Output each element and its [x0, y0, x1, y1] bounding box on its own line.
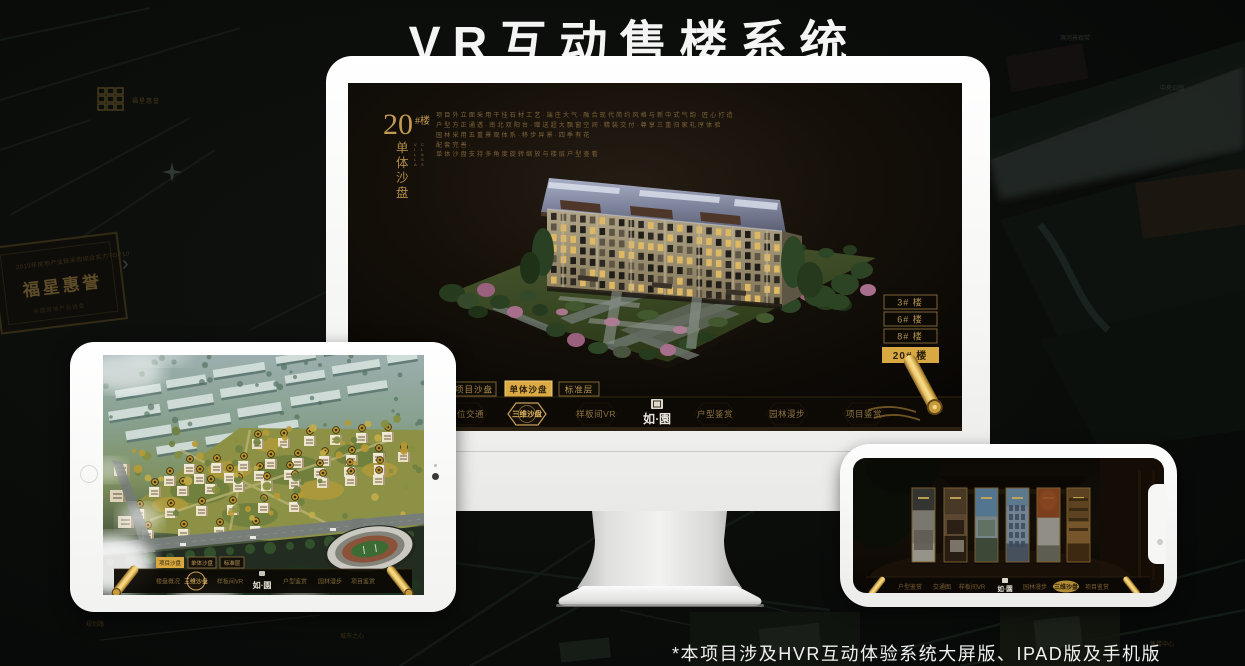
- svg-text:户型鉴赏: 户型鉴赏: [283, 578, 307, 586]
- svg-text:项目鉴赏: 项目鉴赏: [1085, 583, 1109, 591]
- svg-text:#楼: #楼: [415, 114, 430, 127]
- svg-text:户型方正通透·南北双阳台·赠送超大飘窗空间·精装交付·尊享三: 户型方正通透·南北双阳台·赠送超大飘窗空间·精装交付·尊享三重归家礼序体验: [436, 121, 722, 129]
- svg-text:›: ›: [122, 253, 129, 275]
- svg-text:如·園: 如·園: [643, 411, 671, 426]
- svg-text:3# 楼: 3# 楼: [897, 297, 923, 308]
- svg-text:园林漫步: 园林漫步: [1023, 583, 1047, 591]
- svg-text:S: S: [421, 162, 424, 167]
- svg-text:交通图: 交通图: [933, 583, 951, 591]
- svg-text:福星惠誉: 福星惠誉: [132, 97, 160, 105]
- svg-text:城市之心: 城市之心: [340, 632, 364, 640]
- svg-text:三维沙盘: 三维沙盘: [184, 578, 208, 586]
- svg-text:项目外立面采用干挂石材工艺·端庄大气·融合现代简约风格与新中: 项目外立面采用干挂石材工艺·端庄大气·融合现代简约风格与新中式气韵·匠心打造: [436, 111, 735, 119]
- svg-text:8# 楼: 8# 楼: [897, 331, 923, 342]
- svg-text:三维沙盘: 三维沙盘: [1054, 583, 1078, 591]
- svg-text:中央公园: 中央公园: [1160, 84, 1184, 92]
- svg-text:单: 单: [396, 141, 409, 155]
- svg-text:单体沙盘支持多角度旋转缩放与楼层户型查看: 单体沙盘支持多角度旋转缩放与楼层户型查看: [436, 150, 600, 158]
- svg-text:单体沙盘: 单体沙盘: [191, 559, 214, 567]
- svg-text:沙: 沙: [396, 171, 409, 185]
- svg-text:20: 20: [383, 108, 413, 141]
- svg-text:项目沙盘: 项目沙盘: [159, 559, 182, 567]
- svg-text:项目鉴赏: 项目鉴赏: [351, 578, 375, 586]
- svg-text:楼盘概况: 楼盘概况: [156, 578, 180, 586]
- svg-text:如·園: 如·園: [997, 584, 1013, 593]
- svg-text:园林漫步: 园林漫步: [769, 409, 805, 419]
- svg-text:单体沙盘: 单体沙盘: [509, 385, 547, 395]
- svg-text:样板间VR: 样板间VR: [217, 578, 244, 586]
- svg-text:项目沙盘: 项目沙盘: [455, 385, 493, 395]
- svg-text:6# 楼: 6# 楼: [897, 314, 923, 325]
- svg-text:标准层: 标准层: [565, 385, 594, 395]
- svg-text:配套完善·: 配套完善·: [436, 141, 473, 149]
- svg-text:户型鉴赏: 户型鉴赏: [697, 409, 733, 419]
- svg-text:标准层: 标准层: [224, 559, 241, 567]
- svg-text:园林采用五重景观体系·移步异景·四季有花: 园林采用五重景观体系·移步异景·四季有花: [436, 131, 592, 139]
- svg-text:三维沙盘: 三维沙盘: [512, 409, 542, 419]
- svg-text:A: A: [414, 162, 417, 167]
- svg-text:户型鉴赏: 户型鉴赏: [898, 583, 922, 591]
- svg-text:规划路: 规划路: [86, 620, 104, 628]
- svg-text:体: 体: [396, 156, 409, 170]
- svg-text:样板间VR: 样板间VR: [959, 583, 986, 591]
- svg-text:园林漫步: 园林漫步: [318, 578, 342, 586]
- svg-text:如·園: 如·園: [253, 580, 272, 590]
- svg-text:盘: 盘: [396, 185, 409, 200]
- svg-text:样板间VR: 样板间VR: [576, 409, 616, 419]
